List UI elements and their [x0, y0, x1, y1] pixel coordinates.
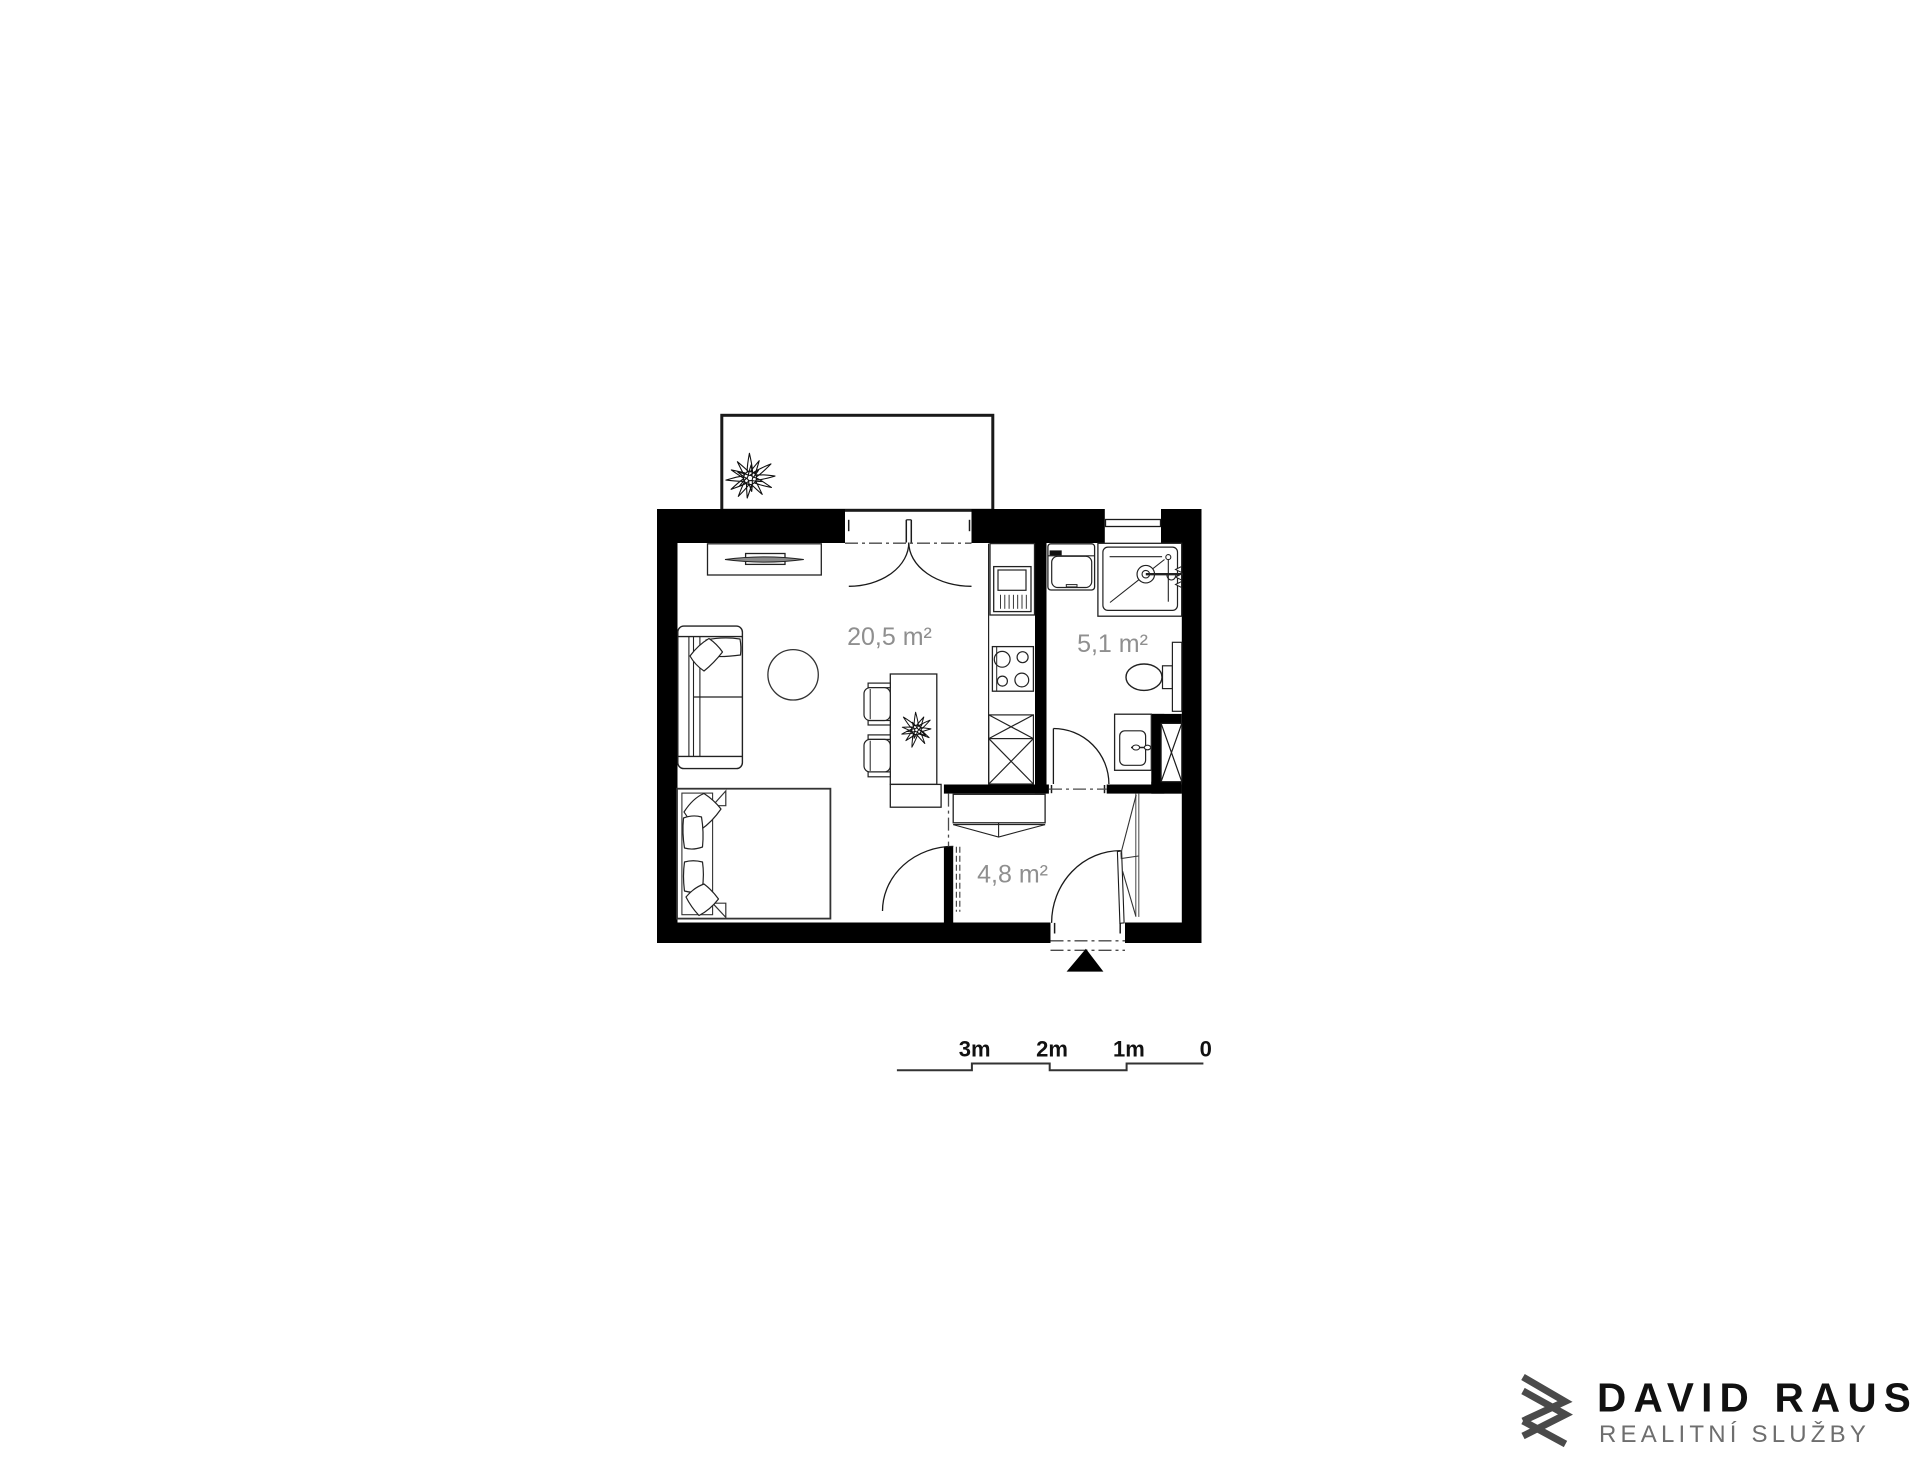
svg-text:4,8 m²: 4,8 m² [977, 860, 1048, 888]
svg-text:20,5 m²: 20,5 m² [847, 623, 932, 651]
svg-text:DAVID RAUS: DAVID RAUS [1597, 1374, 1918, 1420]
svg-text:1m: 1m [1113, 1037, 1145, 1062]
svg-text:3m: 3m [959, 1037, 991, 1062]
svg-text:5,1 m²: 5,1 m² [1077, 630, 1148, 658]
svg-text:2m: 2m [1036, 1037, 1068, 1062]
svg-text:REALITNÍ SLUŽBY: REALITNÍ SLUŽBY [1599, 1421, 1870, 1448]
svg-text:0: 0 [1200, 1037, 1212, 1062]
